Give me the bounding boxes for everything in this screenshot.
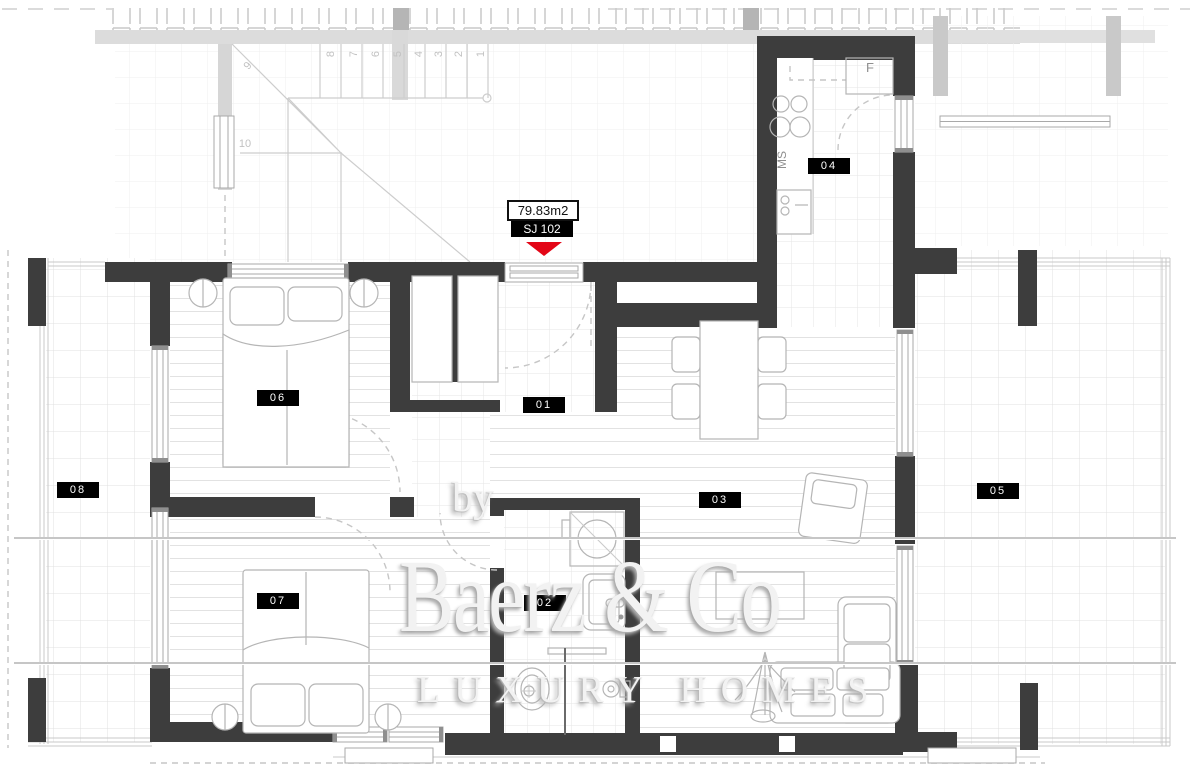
stair-step-8: 8 xyxy=(325,46,337,62)
watermark-rule-bottom xyxy=(14,662,1176,664)
stair-step-10: 10 xyxy=(234,138,256,150)
unit-area-label: 79.83m2 xyxy=(507,200,579,221)
room-label-08: 08 xyxy=(57,482,99,498)
unit-code-label: SJ 102 xyxy=(511,221,573,237)
stair-step-7: 7 xyxy=(348,46,360,62)
stair-step-1: 1 xyxy=(475,46,487,62)
room-label-03: 03 xyxy=(699,492,741,508)
watermark-by: by xyxy=(452,474,494,522)
watermark-tagline: LUXURY HOMES xyxy=(417,668,882,712)
room-label-06: 06 xyxy=(257,390,299,406)
floor-plan-page: 79.83m2 SJ 102 01 02 03 04 05 06 07 08 F… xyxy=(0,0,1192,766)
stair-step-5: 5 xyxy=(392,46,404,62)
stair-step-4: 4 xyxy=(413,46,425,62)
unit-marker-arrow-icon xyxy=(526,242,562,256)
kitchen-counter-label: MS xyxy=(775,145,789,169)
room-label-04: 04 xyxy=(808,158,850,174)
room-label-01: 01 xyxy=(523,397,565,413)
stair-step-3: 3 xyxy=(433,46,445,62)
stair-step-2: 2 xyxy=(453,46,465,62)
watermark-brand: Baerz & Co xyxy=(399,542,780,651)
room-label-07: 07 xyxy=(257,593,299,609)
room-label-05: 05 xyxy=(977,483,1019,499)
stair-step-6: 6 xyxy=(370,46,382,62)
fridge-label: F xyxy=(866,60,874,75)
